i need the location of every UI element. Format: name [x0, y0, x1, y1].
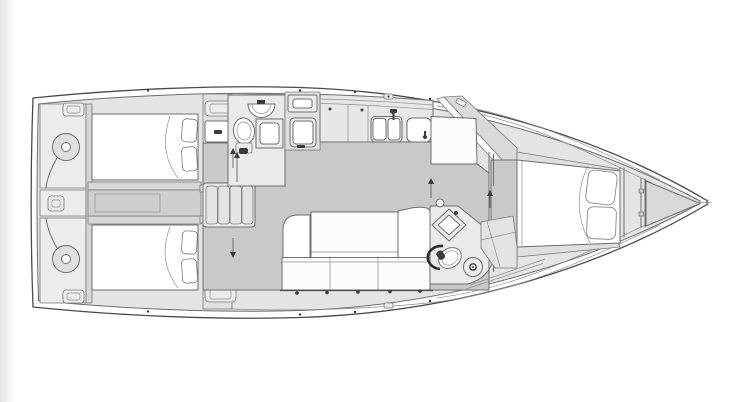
steering-quadrant-port-hub — [62, 143, 71, 152]
fitting-dot — [329, 108, 332, 111]
deck-dot — [147, 310, 149, 312]
boat-floorplan-page — [0, 0, 737, 402]
deck-dot — [429, 98, 431, 100]
bulkhead-fitting — [639, 212, 644, 216]
fitting-dot — [361, 109, 364, 112]
aft-basin-faucet — [454, 211, 458, 215]
forward-head — [228, 95, 285, 186]
engine-wall-bottom — [88, 216, 201, 224]
galley — [320, 95, 433, 143]
deck-clutch-bottom — [384, 303, 393, 308]
sofa-cushions — [282, 258, 430, 291]
deck-dot — [429, 300, 431, 302]
saloon-sofa — [280, 207, 433, 295]
rail-dot — [388, 290, 392, 294]
engine-wall-top — [88, 182, 201, 190]
pillow — [181, 231, 197, 255]
sink-basin-right — [388, 119, 400, 141]
aft-cabin-starboard — [92, 225, 198, 290]
pillow — [181, 147, 197, 172]
stove-handle — [297, 145, 305, 148]
locker-above-stove-inner — [293, 99, 312, 108]
deck-hatch-top — [63, 103, 84, 116]
steering-quadrant-starboard-hub — [62, 255, 71, 264]
stove-unit — [285, 92, 320, 150]
deck-dot — [299, 89, 301, 91]
aft-cabin-port — [92, 114, 198, 180]
deck-dot — [387, 95, 389, 97]
stove-top — [293, 121, 313, 144]
deck-dot — [354, 311, 356, 313]
sink-basin-left — [373, 119, 386, 141]
step-tread — [218, 186, 230, 224]
cabinet-handle-top — [214, 130, 222, 134]
step-tread — [206, 186, 218, 224]
companionway-steps — [200, 183, 255, 227]
sofa-backrest-right — [398, 207, 430, 257]
page-edge-gradient — [0, 0, 15, 402]
step-tread — [230, 186, 242, 224]
washbasin — [260, 123, 279, 144]
pillow — [181, 119, 198, 143]
prep-sink — [407, 118, 431, 142]
deck-hatch-bottom — [63, 290, 84, 303]
bulkhead-fitting — [639, 189, 644, 193]
prep-faucet — [423, 135, 427, 139]
boat-floorplan — [0, 0, 737, 402]
deck-dot — [354, 91, 356, 93]
center-hatch — [48, 196, 64, 211]
deck-dot — [147, 89, 149, 91]
pillow — [585, 169, 618, 205]
pillow — [586, 207, 616, 240]
rail-dot — [356, 290, 360, 294]
toilet-pump — [239, 148, 248, 154]
shower-drain-dash — [257, 100, 265, 104]
deck-dot — [299, 313, 301, 315]
salon-table — [311, 212, 398, 258]
engine-compartment — [88, 182, 201, 224]
fitting-dot — [392, 112, 395, 115]
chaise-seat — [283, 215, 310, 258]
stern-lazarettes — [40, 103, 92, 303]
mast-post — [436, 199, 444, 207]
rail-dot — [295, 291, 299, 295]
step-tread — [242, 186, 253, 224]
pillow — [181, 258, 198, 283]
rail-dot — [325, 291, 329, 295]
rail-dot — [418, 289, 422, 293]
shower-drain-dot — [472, 266, 474, 268]
chart-table — [431, 117, 477, 165]
